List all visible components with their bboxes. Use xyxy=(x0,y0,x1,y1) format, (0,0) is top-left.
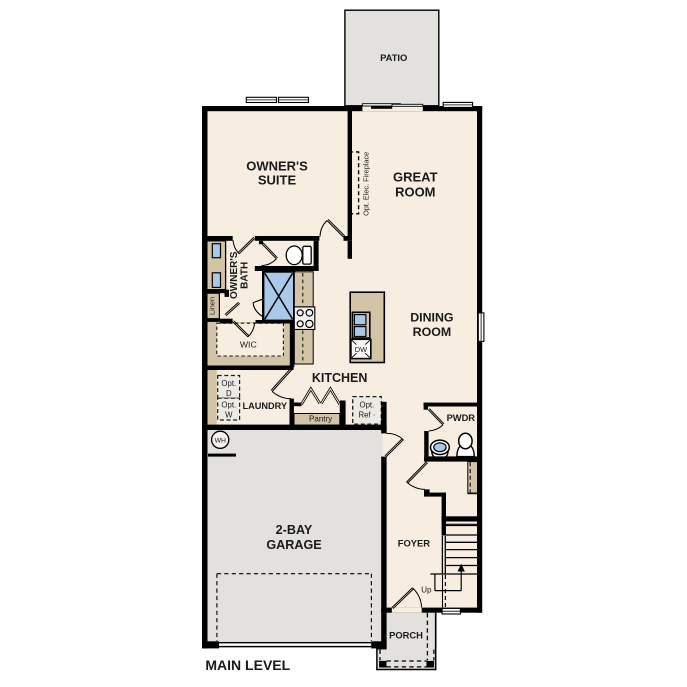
svg-text:FOYER: FOYER xyxy=(398,538,431,549)
svg-text:LAUNDRY: LAUNDRY xyxy=(243,401,288,411)
svg-text:MAIN LEVEL: MAIN LEVEL xyxy=(205,657,290,673)
svg-text:DW: DW xyxy=(355,345,367,354)
svg-text:GREAT: GREAT xyxy=(393,170,438,185)
svg-text:Up: Up xyxy=(421,585,432,594)
svg-text:Ref ·: Ref · xyxy=(358,411,375,420)
svg-text:PWDR: PWDR xyxy=(447,413,476,423)
svg-text:SUITE: SUITE xyxy=(258,173,297,188)
svg-text:ROOM: ROOM xyxy=(413,325,452,339)
svg-text:KITCHEN: KITCHEN xyxy=(312,371,368,385)
svg-text:Opt.: Opt. xyxy=(221,401,236,410)
svg-text:Opt. Elec. Fireplace: Opt. Elec. Fireplace xyxy=(361,152,370,216)
svg-text:Linen: Linen xyxy=(208,297,217,315)
svg-text:2-BAY: 2-BAY xyxy=(276,523,313,537)
svg-text:Pantry: Pantry xyxy=(309,415,332,424)
svg-text:PORCH: PORCH xyxy=(389,630,423,641)
svg-text:OWNER'S: OWNER'S xyxy=(246,159,308,174)
svg-text:W: W xyxy=(225,411,233,420)
svg-text:Opt.: Opt. xyxy=(360,400,375,409)
svg-text:ROOM: ROOM xyxy=(395,184,435,199)
svg-text:OWNER'S: OWNER'S xyxy=(229,251,240,299)
svg-text:BATH: BATH xyxy=(240,262,251,289)
svg-text:WIC: WIC xyxy=(240,339,257,349)
svg-text:PATIO: PATIO xyxy=(380,52,407,63)
svg-text:Opt.: Opt. xyxy=(221,379,236,388)
svg-text:DINING: DINING xyxy=(410,311,453,325)
svg-text:GARAGE: GARAGE xyxy=(266,538,321,552)
svg-text:WH: WH xyxy=(215,438,226,445)
svg-text:D: D xyxy=(226,389,232,398)
